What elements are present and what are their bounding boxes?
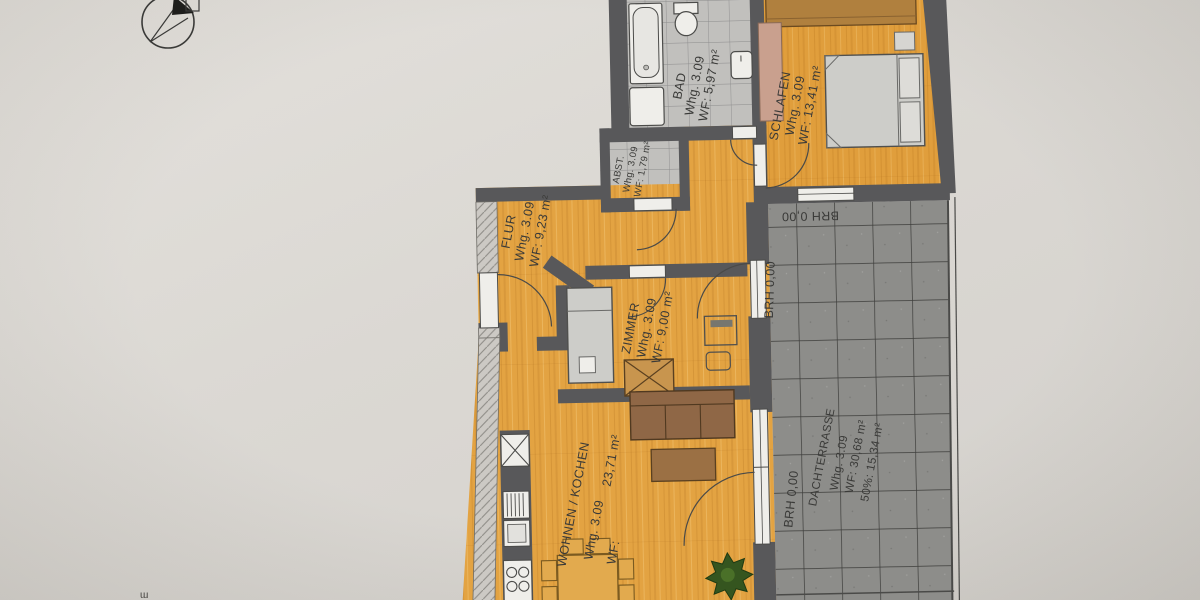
sheet-fragment-text: ɯ (140, 590, 149, 600)
entrance-door (479, 273, 498, 328)
wall-entrance-upper (476, 202, 498, 273)
bathtub-drain (644, 65, 649, 70)
pillow-1 (899, 58, 920, 98)
kitchen-sink-basin (508, 524, 526, 542)
chair (542, 586, 557, 600)
shower (630, 87, 665, 126)
wall-east-lower (753, 542, 776, 600)
kitchen-appliances (501, 434, 533, 600)
wall-east-mid (748, 316, 772, 412)
brh-annotation-zimmer: BRH 0,00 (762, 261, 778, 319)
pillow-2 (900, 102, 921, 142)
apartment-plan: BAD Whg. 3.09 WF: 5,97 m² SCHLAFEN Whg. … (449, 0, 965, 600)
terrace-floor (768, 200, 956, 600)
north-arrow-icon (142, 0, 199, 48)
coffee-table (651, 448, 716, 481)
brh-annotation-top: BRH 0,00 (781, 208, 839, 223)
wall-flur-south-stub (537, 336, 571, 351)
floor-plan-canvas: ɯ (0, 0, 1200, 600)
sofa (630, 390, 735, 440)
wall-zimmer-east-upper (746, 202, 769, 264)
toilet-bowl (675, 11, 697, 35)
bad-door (732, 126, 756, 138)
stove (503, 560, 532, 600)
wardrobe (766, 0, 917, 27)
desk-monitor (710, 320, 732, 327)
washbasin (731, 51, 753, 78)
nightstand (894, 32, 914, 50)
floor-plan-photo: ɯ (0, 0, 1200, 600)
wall-bad-west (608, 0, 629, 136)
bed-fold (579, 357, 595, 373)
abst-door (634, 198, 672, 211)
zimmer-door (629, 265, 665, 278)
chair (619, 585, 634, 600)
chair (618, 559, 633, 579)
